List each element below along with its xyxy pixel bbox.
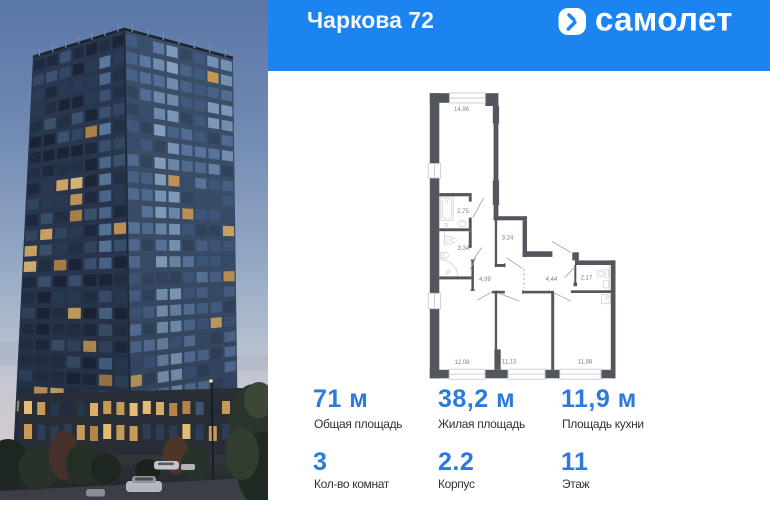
svg-text:3,24: 3,24: [502, 236, 514, 242]
svg-text:4,44: 4,44: [546, 277, 558, 283]
svg-text:11,13: 11,13: [502, 360, 517, 366]
svg-text:2,17: 2,17: [581, 276, 593, 282]
svg-text:12,08: 12,08: [454, 360, 470, 366]
svg-text:4,99: 4,99: [479, 277, 491, 283]
svg-text:2,75: 2,75: [457, 209, 469, 215]
svg-text:14,96: 14,96: [454, 107, 470, 113]
svg-text:3,34: 3,34: [458, 246, 470, 252]
svg-text:11,88: 11,88: [578, 360, 593, 366]
